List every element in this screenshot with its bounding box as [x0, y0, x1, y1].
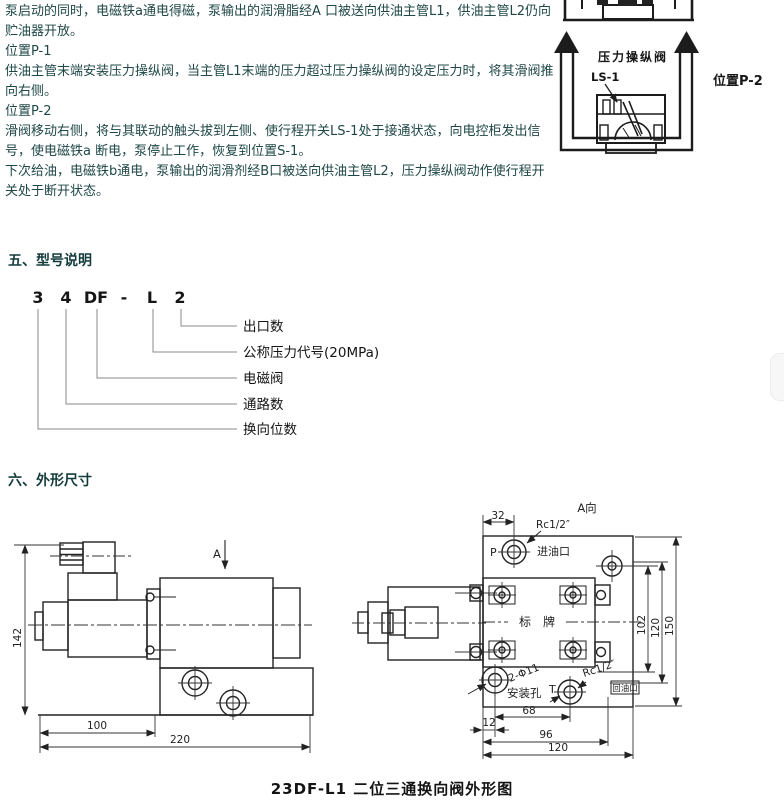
valve-title: 压力操纵阀: [598, 49, 668, 64]
limit-switch-label: LS-1: [591, 70, 619, 84]
dim-120-side: 120: [650, 618, 662, 638]
code-char: -: [121, 288, 128, 307]
port-t-label: T: [548, 683, 556, 696]
model-code-diagram: 3 4 DF - L 2 出口数 公称压力代号(20MPa) 电磁阀 通路数 换…: [0, 272, 430, 447]
code-connector-lines: [38, 309, 237, 429]
top-view-centerlines: [479, 536, 658, 708]
intro-paragraph: 泵启动的同时，电磁铁a通电得磁，泵输出的润滑脂经A 口被送向供油主管L1，供油主…: [5, 2, 554, 42]
outlet-label: 回油口: [612, 683, 638, 694]
dim-142: 142: [12, 628, 24, 648]
thread-inlet-label: Rc1/2″: [536, 519, 570, 531]
code-char: L: [147, 288, 157, 307]
position-p1-label: 位置P-1: [5, 42, 554, 62]
intro-paragraph: 滑阀移动右侧，将与其联动的触头拔到左侧、使行程开关LS-1处于接通状态，向电控柜…: [5, 122, 554, 162]
top-view-outline: [482, 536, 639, 707]
vessel-outline: [561, 50, 692, 150]
scroll-widget[interactable]: [770, 353, 784, 401]
intro-paragraph: 下次给油，电磁铁b通电，泵输出的润滑剂经B口被送向供油主管L2，压力操纵阀动作使…: [5, 162, 554, 202]
view-arrow-a: A: [213, 547, 221, 561]
code-meaning: 公称压力代号(20MPa): [243, 345, 379, 361]
dim-120-bottom: 120: [548, 742, 568, 754]
code-char: 4: [60, 288, 71, 307]
code-char: 2: [174, 288, 185, 307]
outline-dimension-drawing: 142 100 220 A A向: [0, 485, 784, 770]
intro-text-block: 泵启动的同时，电磁铁a通电得磁，泵输出的润滑脂经A 口被送向供油主管L1，供油主…: [5, 2, 554, 202]
a-view-label: A向: [577, 501, 596, 515]
figure-caption: 23DF-L1 二位三通换向阀外形图: [0, 778, 784, 799]
nameplate-label: 标 牌: [519, 615, 555, 629]
dim-150: 150: [664, 616, 676, 636]
side-view-centerlines: [28, 556, 312, 720]
flow-arrow-left: [554, 31, 579, 53]
position-p2-tag: 位置P-2: [713, 70, 763, 89]
position-p2-label: 位置P-2: [5, 102, 554, 122]
code-char: 3: [32, 288, 43, 307]
dim-12: 12: [482, 717, 495, 729]
intro-paragraph: 供油主管末端安装压力操纵阀，当主管L1末端的压力超过压力操纵阀的设定压力时，将其…: [5, 62, 554, 102]
mount-holes-label: 2-Φ11: [507, 662, 541, 685]
dim-32: 32: [491, 510, 504, 522]
inlet-label: 进油口: [537, 544, 570, 558]
section5-title: 五、型号说明: [8, 250, 92, 270]
flow-arrow-right: [674, 31, 699, 53]
code-char: DF: [84, 288, 108, 307]
thread-outlet-label: Rc1/2″: [581, 658, 617, 680]
code-meaning: 换向位数: [243, 422, 297, 438]
dim-220: 220: [170, 734, 190, 746]
mount-label: 安装孔: [507, 686, 542, 700]
dim-96: 96: [539, 729, 553, 741]
clipped-upper-diagram: [563, 0, 694, 20]
code-meaning: 通路数: [243, 397, 284, 413]
middle-view-outline: [358, 585, 483, 660]
code-meaning: 电磁阀: [243, 371, 284, 387]
code-meaning: 出口数: [243, 319, 284, 335]
port-t-leader: [550, 696, 560, 702]
side-view-dimensions: [14, 540, 310, 753]
thread-inlet-leader: [527, 531, 541, 543]
dim-68: 68: [522, 705, 535, 717]
dim-100: 100: [87, 720, 107, 732]
side-view-outline: [35, 542, 313, 716]
valve-mechanism: [597, 95, 665, 153]
port-p-label: P: [490, 546, 497, 559]
dim-102: 102: [636, 615, 648, 635]
